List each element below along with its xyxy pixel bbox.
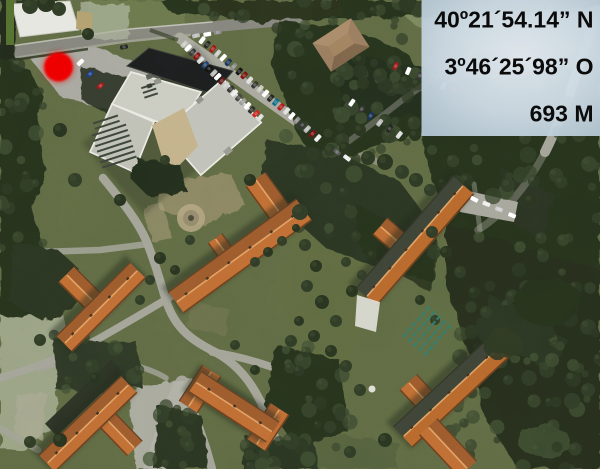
svg-text:693 M: 693 M: [530, 101, 594, 127]
svg-text:40º21´54.14” N: 40º21´54.14” N: [434, 7, 593, 33]
svg-text:3º46´25´98” O: 3º46´25´98” O: [444, 54, 593, 80]
